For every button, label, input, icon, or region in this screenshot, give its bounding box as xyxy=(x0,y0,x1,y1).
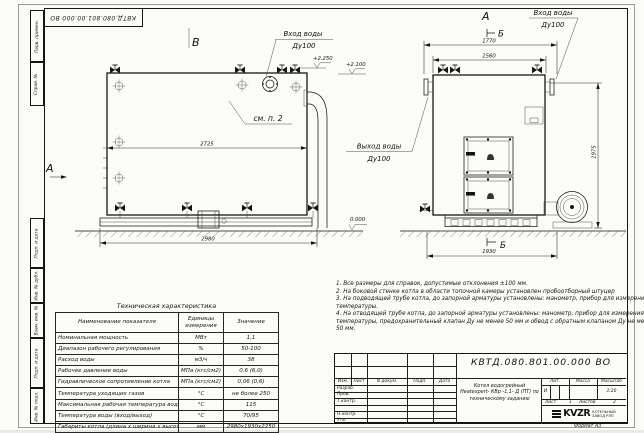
scale-header: Масштаб xyxy=(597,379,626,384)
col-list: Лист xyxy=(351,379,367,384)
note-line: 1. Все размеры для справок, допустимые о… xyxy=(336,281,631,289)
dim-side-inner: 2725 xyxy=(200,142,214,148)
col-header: Единицы измерения xyxy=(179,313,224,333)
tech-table-title: Техническая характеристика xyxy=(55,302,278,310)
row-nkontr: Н.контр. xyxy=(337,412,357,417)
title-block: КВТД.080.801.00.000 ВО Изм. Лист N докум… xyxy=(334,353,628,423)
svg-text:Ду100: Ду100 xyxy=(367,155,392,163)
note-line: 3. На подводящей трубе котла, до запорно… xyxy=(336,296,631,304)
table-row: Максимальная рабочая температура воды°С1… xyxy=(56,399,279,410)
col-podp: Подп. xyxy=(407,379,433,384)
upper-door xyxy=(464,137,513,175)
lit-header: Лит. xyxy=(541,379,569,384)
notes-block: 1. Все размеры для справок, допустимые о… xyxy=(336,281,631,334)
mass-header: Масса xyxy=(569,379,597,384)
elev-2250: +2.250 xyxy=(313,56,333,62)
nozzle-flange xyxy=(262,76,277,91)
logo-text: KVZR xyxy=(563,408,590,419)
table-row: Гидравлическое сопротивление котлаМПа (к… xyxy=(56,377,279,388)
scale-value: 1:20 xyxy=(597,389,626,394)
logo-mark-icon xyxy=(552,409,561,418)
note-line: 4. На отводящей трубе котла, до запорной… xyxy=(336,311,631,319)
label-outlet-water: Выход воды Ду100 xyxy=(346,97,428,163)
row-tkontr: Т.контр. xyxy=(337,399,356,404)
row-razrab: Разраб. xyxy=(337,386,354,391)
tech-table-header: Наименование показателя Единицы измерени… xyxy=(56,313,279,333)
note-line: 50 мм. xyxy=(336,326,631,334)
col-data: Дата xyxy=(433,379,456,384)
svg-text:Выход воды: Выход воды xyxy=(357,143,402,151)
dim-side-overall: 2980 xyxy=(201,237,215,243)
col-izm: Изм. xyxy=(335,379,351,384)
note-line: 2. На боковой стенке котла в области топ… xyxy=(336,289,631,297)
tech-table: Наименование показателя Единицы измерени… xyxy=(55,312,279,433)
svg-text:А: А xyxy=(45,162,54,175)
row-utv: Утв. xyxy=(337,418,346,423)
label-inlet-water-right: Вход воды Ду100 xyxy=(529,9,578,79)
table-row: Диапазон рабочего регулирования%50-100 xyxy=(56,344,279,355)
lower-door xyxy=(464,177,513,213)
note-line: температуры, предохранительный клапан Ду… xyxy=(336,319,631,327)
col-header: Значение xyxy=(224,313,279,333)
table-row: Номинальная мощностьМВт1,1 xyxy=(56,333,279,344)
table-row: Габариты котла (длина х ширина х высота)… xyxy=(56,421,279,432)
label-see-item: см. п. 2 xyxy=(229,101,292,124)
view-marker-a-left: А xyxy=(45,162,67,179)
dim-front-bottom: 1930 xyxy=(482,249,496,255)
dim-front-top: 1770 xyxy=(482,39,496,45)
boiler-side-view: 2725 2980 xyxy=(100,65,327,247)
boiler-front-view: 1770 1560 1975 1930 Б Б xyxy=(419,10,602,259)
section-marker-b-top: Б xyxy=(498,30,504,40)
note-line: температуры. xyxy=(336,304,631,312)
ground-line xyxy=(75,231,626,237)
view-marker-a-top: А xyxy=(481,10,490,23)
dim-front-inner: 1560 xyxy=(482,54,496,60)
svg-text:Вход воды: Вход воды xyxy=(283,30,323,38)
row-prov: Пров. xyxy=(337,392,350,397)
product-name: Котел водогрейный Heatexpert- КВр -1,1- … xyxy=(457,383,542,402)
view-marker-v: В xyxy=(189,28,200,49)
table-row: Температура уходящих газов°Сне более 250 xyxy=(56,388,279,399)
elev-zero: 0.000 xyxy=(350,217,366,223)
svg-text:В: В xyxy=(192,36,200,49)
col-header: Наименование показателя xyxy=(56,313,179,333)
drawing-sheet: Перв. примен. Справ. № Подп. и дата Инв.… xyxy=(0,0,644,430)
fan xyxy=(544,192,592,229)
format-label: Формат А3 xyxy=(574,424,601,429)
title-block-doc-number: КВТД.080.801.00.000 ВО xyxy=(456,357,626,368)
svg-text:Вход воды: Вход воды xyxy=(533,9,573,17)
elev-2100: +2.100 xyxy=(346,62,366,68)
company-logo: KVZR КОТЕЛЬНЫЙ ЗАВОД РЭП xyxy=(541,405,627,422)
section-marker-b-bottom: Б xyxy=(500,241,506,251)
table-row: Рабочее давление водыМПа (кгс/см2)0,6 (6… xyxy=(56,366,279,377)
col-ndoc: N докум. xyxy=(367,379,407,384)
lit-value: И xyxy=(541,389,550,394)
svg-text:Ду100: Ду100 xyxy=(541,21,566,29)
svg-text:см. п. 2: см. п. 2 xyxy=(254,114,283,123)
svg-text:Ду100: Ду100 xyxy=(292,42,317,50)
table-row: Температура воды (вход/выход)°С70/95 xyxy=(56,410,279,421)
dim-height: 1975 xyxy=(592,145,598,159)
table-row: Расход водым3/ч38 xyxy=(56,355,279,366)
logo-subtext: КОТЕЛЬНЫЙ ЗАВОД РЭП xyxy=(592,410,616,418)
